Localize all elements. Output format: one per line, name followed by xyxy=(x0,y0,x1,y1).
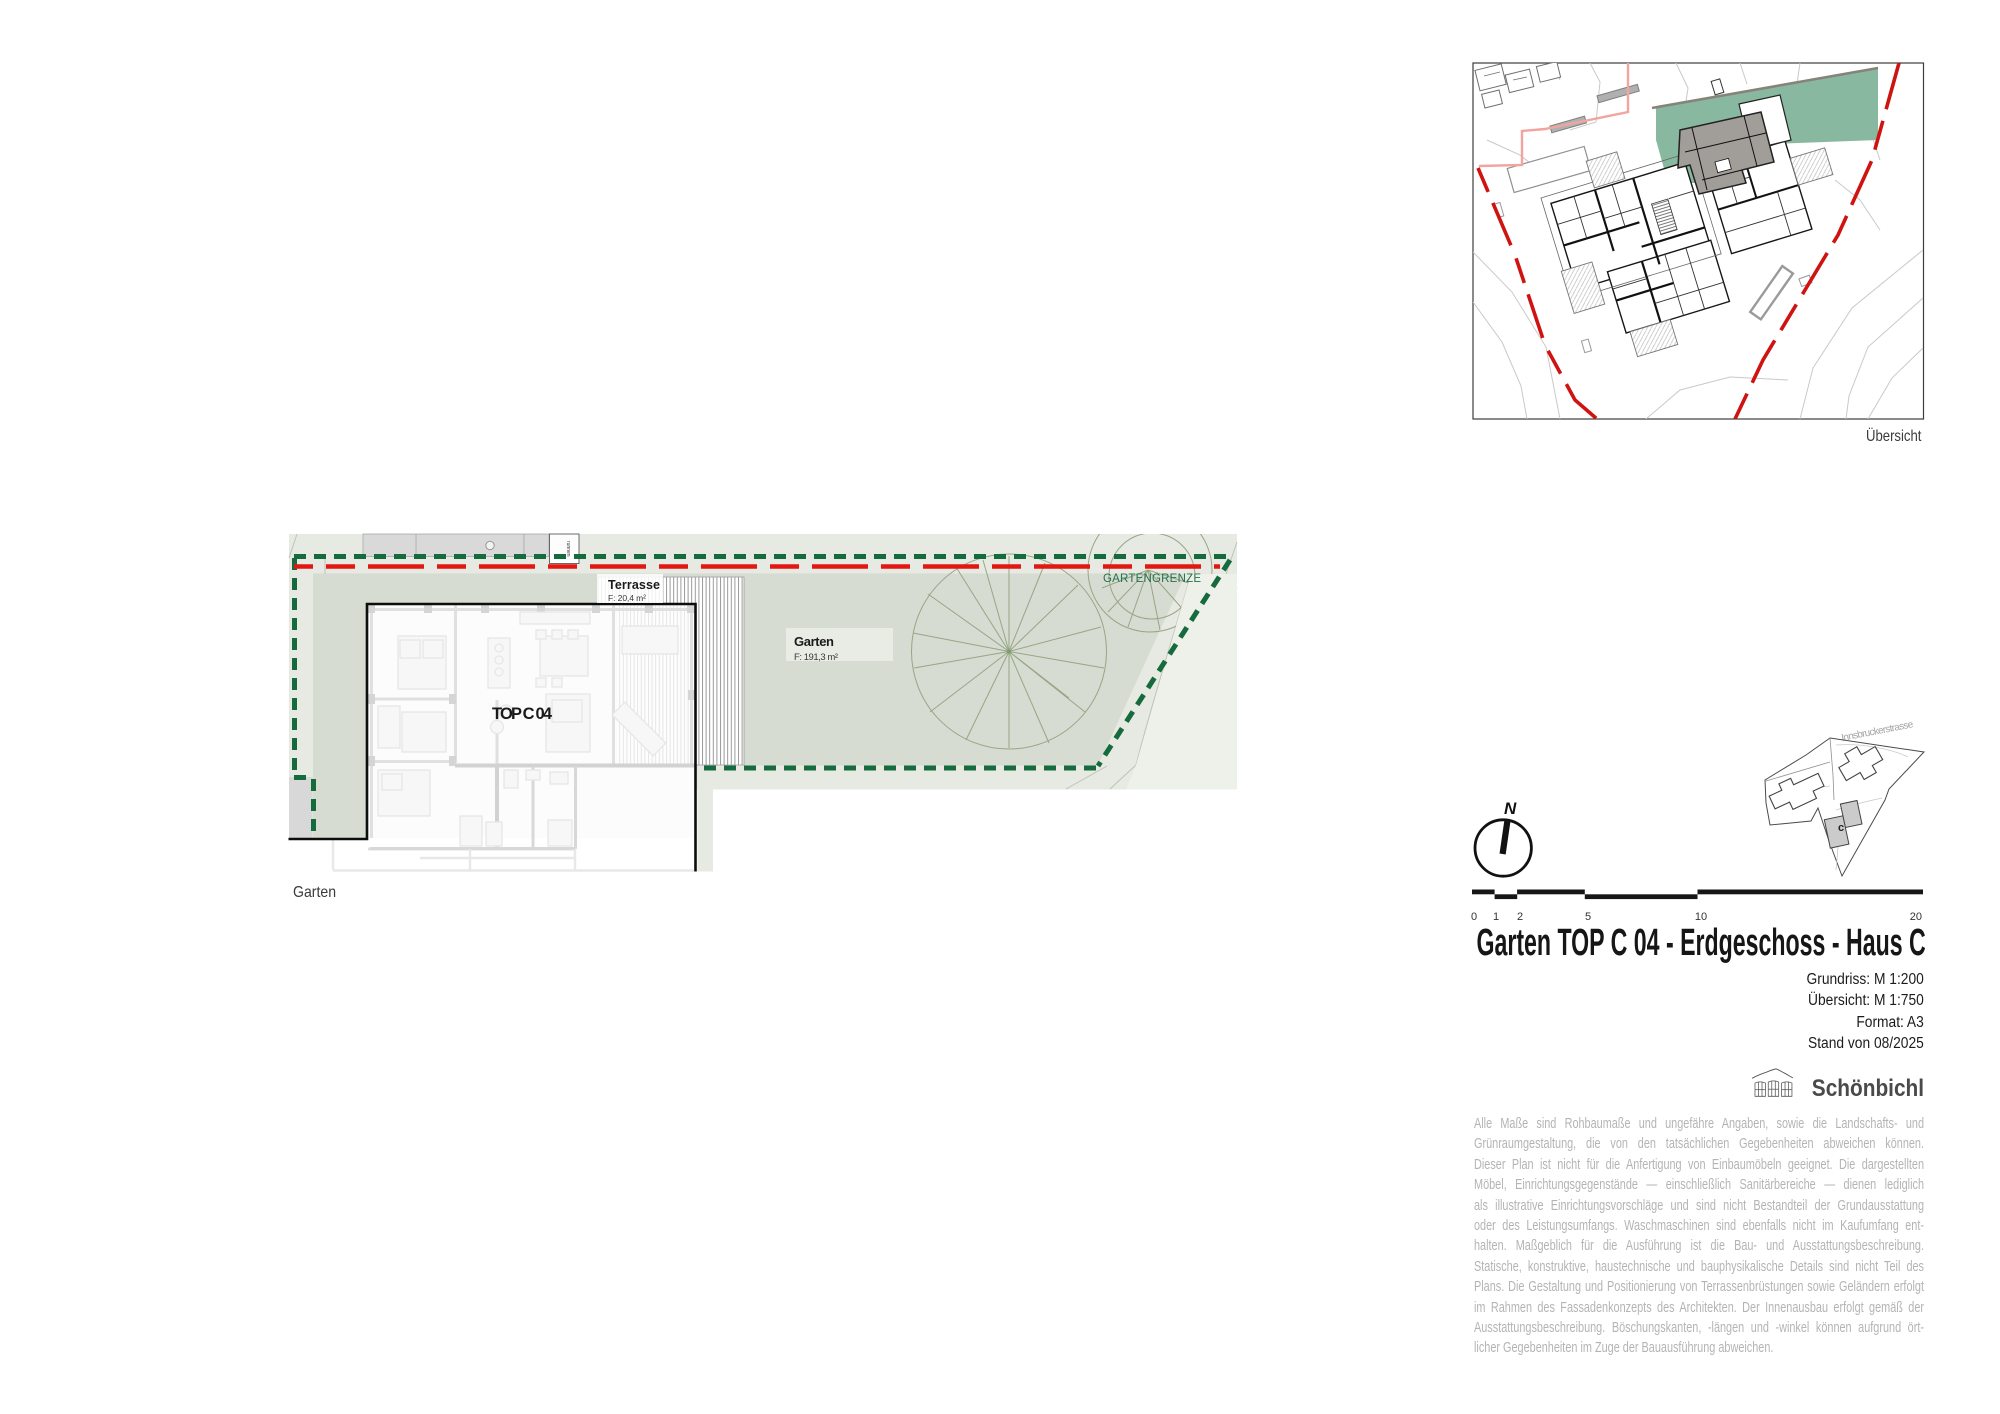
svg-text:F: 191,3 m²: F: 191,3 m² xyxy=(794,652,838,663)
svg-text:Terrasse: Terrasse xyxy=(608,578,660,592)
svg-text:Garten: Garten xyxy=(794,634,834,649)
svg-text:N: N xyxy=(1504,799,1517,818)
svg-text:c: c xyxy=(1838,822,1844,834)
svg-text:F: 20,4 m²: F: 20,4 m² xyxy=(608,593,646,603)
svg-text:GARTENGRENZE: GARTENGRENZE xyxy=(1103,573,1201,585)
svg-text:Innsbruckerstrasse: Innsbruckerstrasse xyxy=(1840,719,1914,744)
svg-text:TOP C 04: TOP C 04 xyxy=(492,705,553,723)
